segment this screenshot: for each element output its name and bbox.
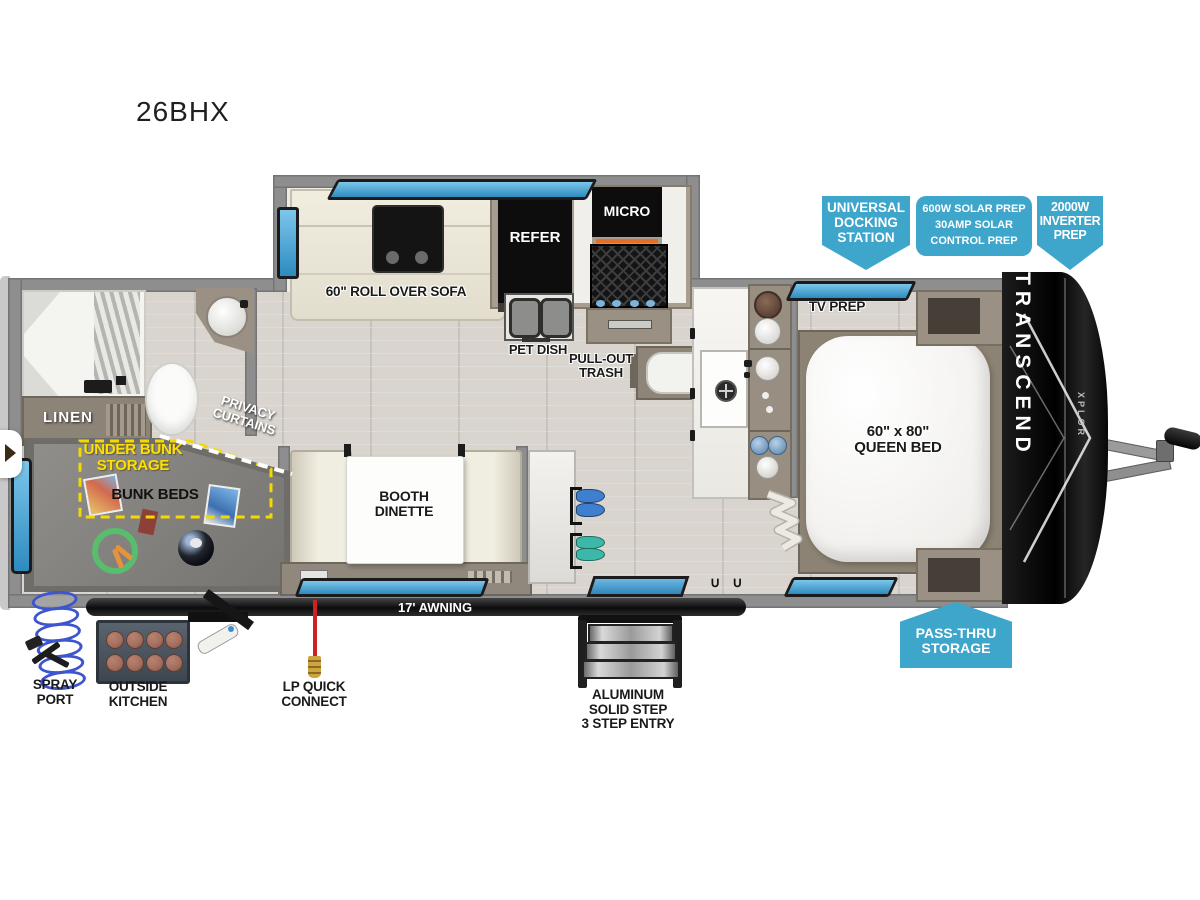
lp-fitting	[308, 656, 321, 678]
fold-bracket-dot	[228, 626, 234, 632]
lp-label: LP QUICK CONNECT	[274, 680, 354, 709]
front-cap: TRANSCEND XPLOR	[1002, 272, 1108, 604]
step-tread-2	[585, 642, 677, 661]
brand-trim: XPLOR	[1076, 392, 1086, 492]
lp-line	[313, 600, 317, 658]
outside-kitchen-griddle	[96, 620, 190, 684]
callout-solar-prep: 600W SOLAR PREP 30AMP SOLAR CONTROL PREP	[916, 196, 1032, 256]
floorplan-page: 26BHX LINEN	[0, 0, 1200, 900]
cap-seam	[1064, 278, 1066, 598]
zigzag-rug	[768, 494, 798, 548]
spray-port-label: SPRAY PORT	[18, 678, 92, 707]
step-tread-1	[588, 624, 674, 643]
under-bunk-storage-label: UNDER BUNK STORAGE	[80, 442, 186, 474]
right-arrow-icon	[5, 444, 16, 462]
step-top-rail	[578, 615, 682, 623]
step-tread-3	[582, 660, 680, 679]
step-label: ALUMINUM SOLID STEP 3 STEP ENTRY	[566, 688, 690, 732]
outside-kitchen-label: OUTSIDE KITCHEN	[90, 680, 186, 709]
prev-arrow-tab[interactable]	[0, 430, 22, 478]
awning-label: 17' AWNING	[380, 600, 490, 615]
bunk-beds-label: BUNK BEDS	[110, 487, 200, 503]
brand-name: TRANSCEND	[1010, 272, 1034, 604]
